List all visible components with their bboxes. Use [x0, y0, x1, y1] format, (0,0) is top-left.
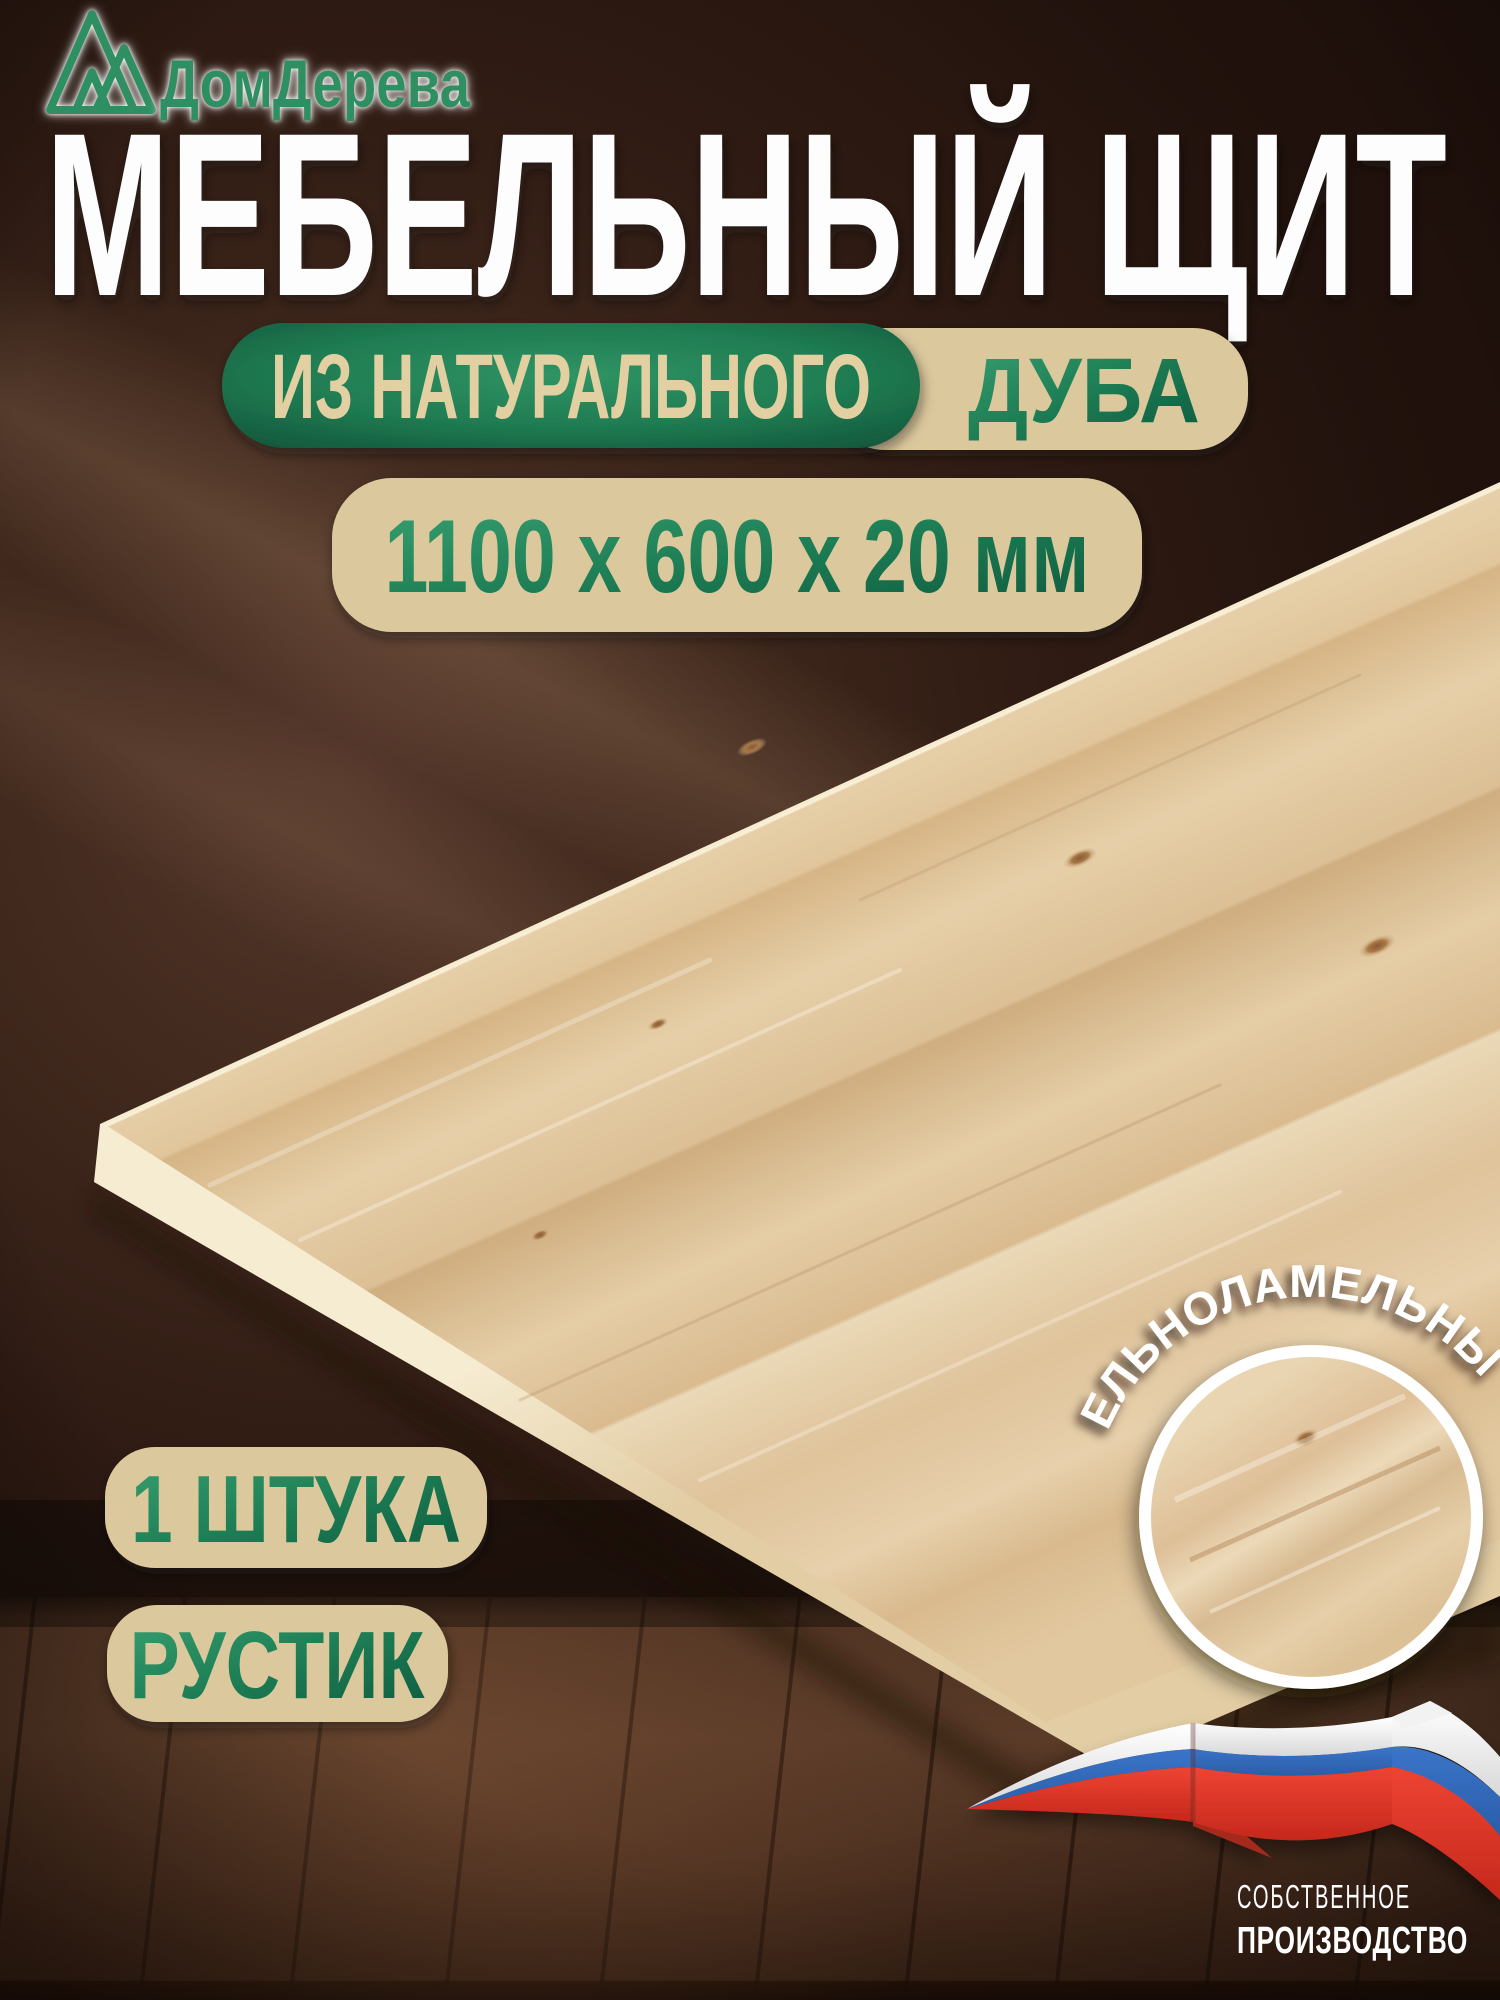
footer-line2: ПРОИЗВОДСТВО — [1237, 1920, 1468, 1962]
material-label: ДУБА — [968, 340, 1200, 442]
grade-label: РУСТИК — [130, 1612, 425, 1719]
wood-texture-circle-icon — [1145, 1351, 1477, 1683]
dimensions-label: 1100 х 600 х 20 мм — [385, 499, 1090, 615]
product-card-canvas: ЦЕЛЬНОЛАМЕЛЬНЫЙ ДомДерева МЕБЕЛЬНЫЙ ЩИТ … — [0, 0, 1500, 2000]
page-title: МЕБЕЛЬНЫЙ ЩИТ — [45, 83, 1447, 345]
footer-line1: СОБСТВЕННОЕ — [1237, 1878, 1411, 1915]
product-card: ЦЕЛЬНОЛАМЕЛЬНЫЙ ДомДерева МЕБЕЛЬНЫЙ ЩИТ … — [0, 0, 1500, 2000]
material-prefix-label: ИЗ НАТУРАЛЬНОГО — [271, 336, 871, 438]
quantity-label: 1 ШТУКА — [131, 1456, 461, 1563]
